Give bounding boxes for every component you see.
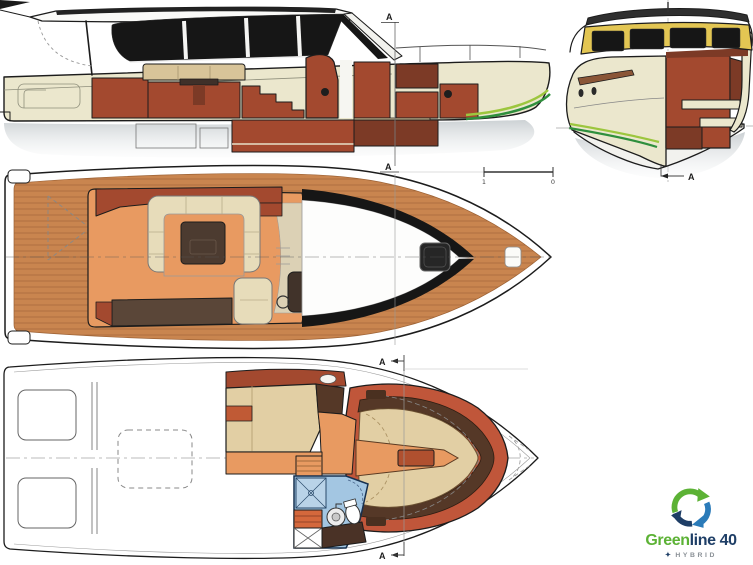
saloon-sofa bbox=[143, 64, 245, 80]
logo-brand-primary: Green bbox=[645, 532, 689, 549]
logo-wordmark: Greenline 40 bbox=[633, 533, 749, 549]
bow-cabinet bbox=[440, 84, 478, 118]
wardrobe bbox=[316, 384, 344, 414]
forward-bulkhead bbox=[354, 62, 390, 118]
scale-start-label: 1 bbox=[482, 178, 486, 186]
section-marker-a: A bbox=[379, 357, 386, 367]
saloon-table bbox=[181, 222, 225, 264]
porthole-icon bbox=[321, 88, 329, 96]
logo-tagline-mark-icon: ✦ bbox=[665, 552, 671, 559]
corridor-floor bbox=[318, 412, 356, 474]
saloon-table-side bbox=[180, 79, 218, 85]
scale-end-label: 0 bbox=[551, 178, 555, 186]
helm-console-side bbox=[306, 55, 338, 118]
bow-section-view bbox=[556, 0, 753, 182]
berth-pillow bbox=[226, 406, 252, 421]
transom-cleat bbox=[8, 170, 30, 183]
logo-tagline: ✦ HYBRID bbox=[633, 551, 749, 559]
cabin-sink bbox=[320, 375, 336, 384]
scale-bar: 1 0 bbox=[482, 167, 555, 186]
porthole-icon bbox=[579, 89, 584, 97]
canopy-swing-arc bbox=[38, 21, 92, 66]
section-marker-a: A bbox=[385, 162, 392, 172]
side-profile-view bbox=[0, 0, 550, 166]
greenline-logo: Greenline 40 ✦ HYBRID bbox=[633, 485, 749, 559]
forward-cabin bbox=[346, 384, 532, 532]
saloon-window-band bbox=[112, 14, 344, 62]
transom-cleat bbox=[8, 331, 30, 344]
porthole-icon bbox=[592, 87, 597, 95]
bathroom bbox=[294, 476, 368, 548]
main-deck-plan-view bbox=[5, 166, 551, 349]
porthole-icon bbox=[444, 90, 452, 98]
recycle-arrows-icon bbox=[668, 485, 714, 531]
guest-cabin bbox=[226, 369, 356, 476]
section-marker-a: A bbox=[688, 172, 695, 182]
general-arrangement-drawing: A A 1 0 A A A bbox=[0, 0, 753, 565]
logo-brand-secondary: line 40 bbox=[690, 532, 737, 549]
aft-bench bbox=[112, 298, 232, 326]
logo-tagline-text: HYBRID bbox=[675, 552, 717, 559]
roof-support-strut bbox=[86, 21, 92, 75]
forward-cabin-table bbox=[398, 450, 434, 466]
bow-railing bbox=[396, 45, 546, 50]
top-left-edge-mark bbox=[0, 0, 30, 9]
boat-plans-page: A A 1 0 A A A Gre bbox=[0, 0, 753, 565]
aft-cabinet bbox=[92, 78, 148, 118]
section-marker-a: A bbox=[386, 12, 393, 22]
lower-cabin-side bbox=[232, 120, 354, 152]
lower-deck-plan-view bbox=[4, 358, 538, 559]
lower-top-marker: A bbox=[379, 355, 528, 371]
side-seat bbox=[234, 278, 272, 324]
section-marker-a: A bbox=[379, 551, 386, 561]
section-floor bbox=[682, 100, 740, 109]
vanity-drawers bbox=[294, 510, 322, 528]
